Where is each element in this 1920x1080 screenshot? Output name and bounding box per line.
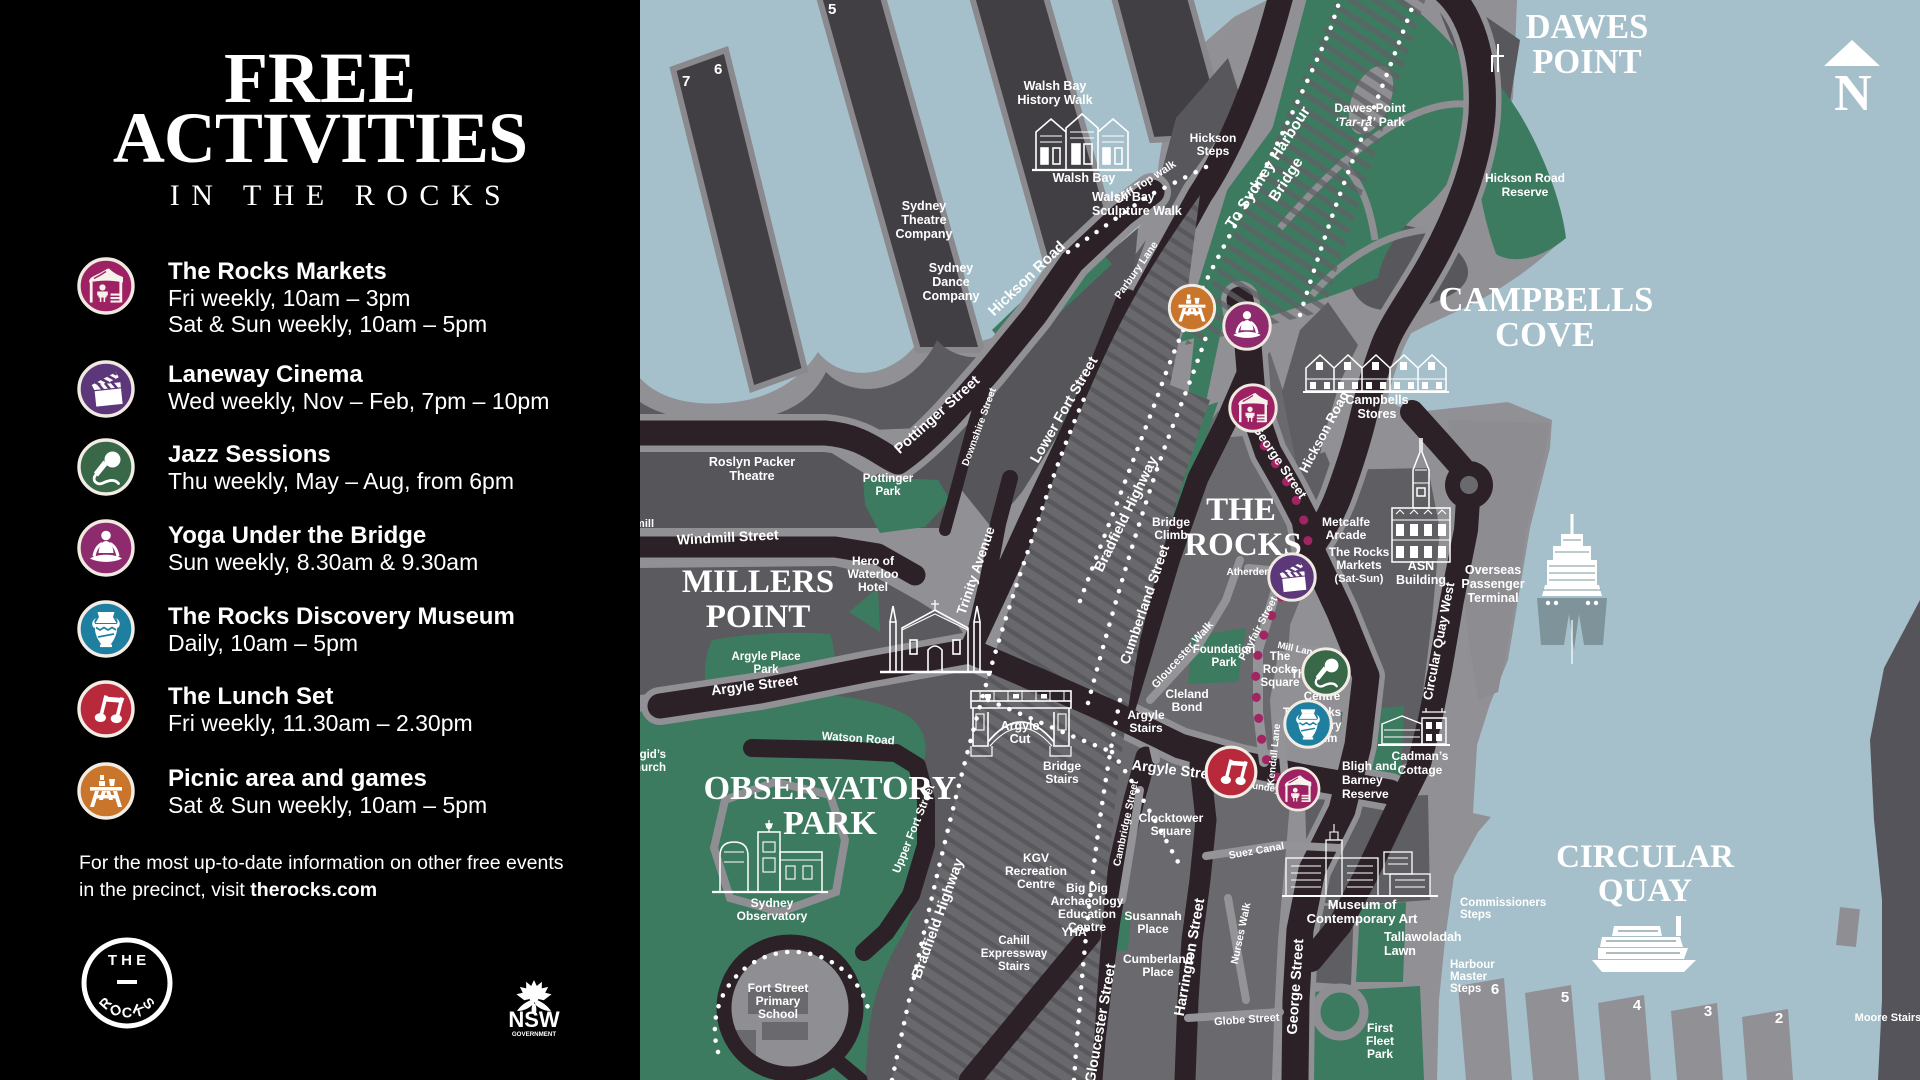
- svg-text:The Rocks: The Rocks: [1329, 545, 1390, 559]
- svg-text:7: 7: [682, 73, 690, 90]
- svg-text:Climb: Climb: [1154, 528, 1187, 542]
- svg-text:Walsh Bay: Walsh Bay: [1053, 171, 1116, 185]
- svg-text:Cadman’s: Cadman’s: [1392, 749, 1449, 763]
- svg-text:Company: Company: [923, 289, 980, 303]
- svg-text:Harbour: Harbour: [1450, 959, 1495, 971]
- svg-text:Education: Education: [1058, 907, 1116, 921]
- svg-text:Stairs: Stairs: [1045, 772, 1079, 786]
- svg-text:Dawes Point: Dawes Point: [1334, 101, 1405, 115]
- svg-text:N: N: [1834, 65, 1872, 122]
- svg-text:Place: Place: [1137, 922, 1169, 936]
- svg-text:THE: THE: [1206, 492, 1276, 528]
- svg-text:(Sat-Sun): (Sat-Sun): [1335, 573, 1384, 585]
- svg-text:Park: Park: [876, 486, 902, 498]
- svg-text:Bridge: Bridge: [1043, 759, 1081, 773]
- svg-text:Stairs: Stairs: [998, 961, 1030, 973]
- svg-text:Expressway: Expressway: [981, 948, 1048, 960]
- svg-text:Campbells: Campbells: [1345, 393, 1408, 407]
- svg-text:Fort Street: Fort Street: [748, 981, 809, 995]
- svg-text:Tallawoladah: Tallawoladah: [1384, 930, 1462, 944]
- svg-text:Terminal: Terminal: [1467, 591, 1518, 605]
- svg-text:Stores: Stores: [1358, 407, 1397, 421]
- svg-text:3: 3: [1704, 1003, 1712, 1020]
- svg-text:4: 4: [1633, 997, 1642, 1014]
- svg-text:Steps: Steps: [1450, 983, 1481, 995]
- svg-text:Lawn: Lawn: [1384, 944, 1416, 958]
- svg-text:DAWES: DAWES: [1526, 8, 1649, 46]
- svg-text:Bridge: Bridge: [1152, 515, 1190, 529]
- svg-text:MILLERS: MILLERS: [682, 564, 834, 600]
- svg-text:Overseas: Overseas: [1465, 563, 1521, 577]
- svg-text:Master: Master: [1450, 971, 1488, 983]
- svg-text:Hero of: Hero of: [852, 554, 895, 568]
- svg-text:Roslyn Packer: Roslyn Packer: [709, 455, 795, 469]
- svg-text:Theatre: Theatre: [729, 469, 774, 483]
- svg-text:NSW: NSW: [508, 1007, 560, 1032]
- svg-text:Pottinger: Pottinger: [863, 473, 914, 485]
- svg-text:Cottage: Cottage: [1398, 763, 1443, 777]
- svg-text:Steps: Steps: [1460, 909, 1491, 921]
- svg-text:6: 6: [714, 61, 722, 78]
- svg-text:Hickson: Hickson: [1190, 131, 1237, 145]
- svg-text:Bond: Bond: [1172, 700, 1203, 714]
- svg-text:Reserve: Reserve: [1342, 787, 1389, 801]
- svg-text:YHA: YHA: [1061, 925, 1087, 939]
- svg-text:Argyle: Argyle: [1127, 708, 1165, 722]
- svg-text:ASN: ASN: [1408, 559, 1434, 573]
- svg-text:Observatory: Observatory: [737, 909, 808, 923]
- svg-text:2: 2: [1775, 1010, 1783, 1027]
- svg-text:Cahill: Cahill: [998, 935, 1029, 947]
- svg-text:CIRCULAR: CIRCULAR: [1556, 839, 1735, 875]
- svg-text:Place: Place: [1142, 965, 1174, 979]
- svg-text:COVE: COVE: [1495, 316, 1595, 354]
- svg-text:Hickson Road: Hickson Road: [1485, 171, 1565, 185]
- svg-text:POINT: POINT: [706, 599, 811, 635]
- svg-text:Stairs: Stairs: [1129, 721, 1163, 735]
- svg-text:Walsh Bay: Walsh Bay: [1092, 190, 1155, 204]
- svg-text:Clocktower: Clocktower: [1139, 811, 1204, 825]
- svg-text:History Walk: History Walk: [1017, 93, 1092, 107]
- svg-text:Centre: Centre: [1017, 877, 1055, 891]
- svg-text:KGV: KGV: [1023, 851, 1049, 865]
- svg-text:Cleland: Cleland: [1165, 687, 1208, 701]
- svg-text:Metcalfe: Metcalfe: [1322, 515, 1370, 529]
- svg-text:Passenger: Passenger: [1461, 577, 1524, 591]
- svg-text:Argyle Place: Argyle Place: [731, 651, 800, 663]
- svg-text:Sydney: Sydney: [929, 261, 974, 275]
- svg-text:Building: Building: [1396, 573, 1446, 587]
- svg-text:Bligh and: Bligh and: [1342, 759, 1397, 773]
- svg-text:Markets: Markets: [1336, 558, 1382, 572]
- svg-text:Church: Church: [640, 762, 666, 774]
- svg-text:CAMPBELLS: CAMPBELLS: [1439, 281, 1654, 319]
- svg-text:Sydney: Sydney: [751, 896, 794, 910]
- svg-text:Moore Stairs: Moore Stairs: [1855, 1012, 1920, 1024]
- svg-text:mill: mill: [640, 518, 654, 530]
- svg-text:First: First: [1367, 1021, 1393, 1035]
- svg-text:Dance: Dance: [932, 275, 970, 289]
- svg-text:Park: Park: [1212, 657, 1238, 669]
- svg-text:Argyle: Argyle: [1001, 719, 1040, 733]
- svg-text:PARK: PARK: [783, 805, 877, 842]
- svg-text:Archaeology: Archaeology: [1051, 894, 1124, 908]
- svg-text:Square: Square: [1151, 824, 1192, 838]
- svg-text:The: The: [1270, 651, 1290, 663]
- svg-text:Fleet: Fleet: [1366, 1034, 1394, 1048]
- svg-text:POINT: POINT: [1532, 43, 1641, 81]
- svg-text:Hotel: Hotel: [858, 580, 888, 594]
- svg-text:Big Dig: Big Dig: [1066, 881, 1108, 895]
- svg-text:Susannah: Susannah: [1124, 909, 1181, 923]
- svg-text:‘Tar-ra’ Park: ‘Tar-ra’ Park: [1335, 115, 1405, 129]
- svg-text:School: School: [758, 1007, 798, 1021]
- svg-text:Museum of: Museum of: [1328, 897, 1397, 912]
- svg-text:Company: Company: [896, 227, 953, 241]
- svg-text:Barney: Barney: [1342, 773, 1383, 787]
- svg-text:Contemporary Art: Contemporary Art: [1307, 911, 1418, 926]
- svg-text:Park: Park: [1367, 1047, 1393, 1061]
- svg-text:Steps: Steps: [1197, 144, 1230, 158]
- svg-text:5: 5: [828, 1, 836, 18]
- svg-text:Sydney: Sydney: [902, 199, 947, 213]
- svg-text:5: 5: [1561, 989, 1569, 1006]
- svg-text:Theatre: Theatre: [901, 213, 946, 227]
- svg-text:Foundation: Foundation: [1193, 644, 1256, 656]
- svg-text:St Brigid’s: St Brigid’s: [640, 749, 666, 761]
- svg-text:QUAY: QUAY: [1598, 873, 1692, 909]
- svg-text:GOVERNMENT: GOVERNMENT: [512, 1031, 557, 1038]
- svg-text:Primary: Primary: [756, 994, 801, 1008]
- svg-text:Park: Park: [754, 664, 780, 676]
- svg-text:Walsh Bay: Walsh Bay: [1024, 79, 1087, 93]
- svg-text:Recreation: Recreation: [1005, 864, 1067, 878]
- svg-text:Commissioners: Commissioners: [1460, 897, 1546, 909]
- svg-text:Sculpture Walk: Sculpture Walk: [1092, 204, 1182, 218]
- svg-text:6: 6: [1491, 981, 1499, 998]
- svg-text:T H E: T H E: [108, 952, 146, 969]
- svg-text:Cut: Cut: [1010, 732, 1032, 746]
- svg-text:Reserve: Reserve: [1502, 185, 1549, 199]
- svg-text:Waterloo: Waterloo: [848, 567, 899, 581]
- svg-text:Arcade: Arcade: [1326, 528, 1367, 542]
